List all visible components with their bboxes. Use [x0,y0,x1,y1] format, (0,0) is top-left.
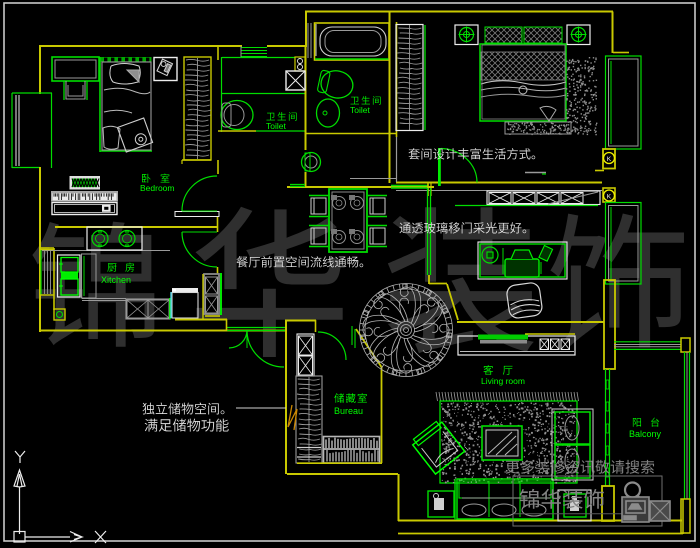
svg-text:K: K [607,156,612,163]
svg-text:Toilet: Toilet [266,121,286,131]
svg-text:K: K [607,194,612,201]
svg-text:Toilet: Toilet [350,105,370,115]
svg-text:Bureau: Bureau [334,406,363,416]
svg-text:Living room: Living room [481,376,525,386]
svg-text:Bedroom: Bedroom [140,183,175,193]
svg-text:Xitchen: Xitchen [101,275,131,285]
svg-text:Balcony: Balcony [629,429,662,439]
